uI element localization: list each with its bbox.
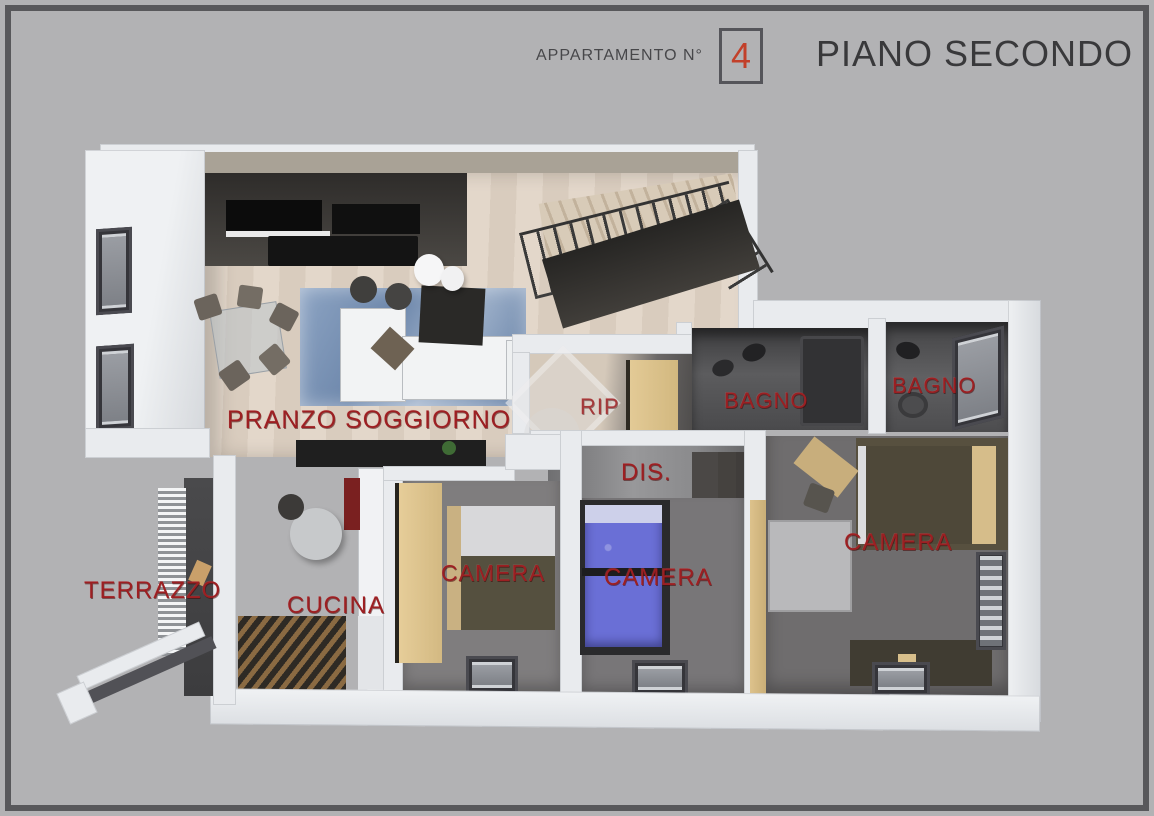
floorplan-render: PRANZO SOGGIORNO RIP BAGNO BAGNO DIS. CA… xyxy=(0,0,1154,816)
bottom-outer-wall xyxy=(210,688,1040,731)
rip-top-wall xyxy=(512,334,692,354)
camera1-window xyxy=(466,656,518,694)
living-window-2 xyxy=(96,344,134,432)
kitchen-bench-slats xyxy=(238,616,346,698)
window-glass xyxy=(102,233,126,309)
camera1-right-wall xyxy=(560,430,582,696)
room-label-cucina: CUCINA xyxy=(287,592,385,620)
tv-panel-2 xyxy=(332,204,420,234)
kitchen-counter xyxy=(296,440,486,467)
room-label-camera-2: CAMERA xyxy=(604,564,713,592)
room-label-camera-3: CAMERA xyxy=(844,529,953,557)
room-label-terrazzo: TERRAZZO xyxy=(84,577,221,605)
red-cabinet xyxy=(344,478,360,530)
camera3-window-right xyxy=(976,552,1006,650)
camera3-closet-white xyxy=(768,520,852,612)
room-label-camera-1: CAMERA xyxy=(441,560,545,587)
counter-plant xyxy=(442,441,456,455)
room-label-pranzo-soggiorno: PRANZO SOGGIORNO xyxy=(227,406,511,435)
camera2-wardrobe xyxy=(750,500,767,696)
living-window-1 xyxy=(96,227,132,316)
outer-right-wall xyxy=(1008,300,1041,722)
living-bottom-left-wall xyxy=(85,428,210,458)
room-label-dis: DIS. xyxy=(621,459,672,487)
window-glass xyxy=(102,350,128,425)
pouf-2 xyxy=(385,283,412,310)
room-label-rip: RIP xyxy=(580,394,620,420)
shower-column xyxy=(800,336,864,426)
bagni-divider-wall xyxy=(868,318,886,434)
window-glass xyxy=(472,662,512,688)
kitchen-column xyxy=(358,468,386,696)
tulip-chair-1 xyxy=(414,254,444,286)
presentation-board: APPARTAMENTO N° 4 PIANO SECONDO xyxy=(0,0,1154,816)
tv-screen xyxy=(226,200,322,232)
window-glass xyxy=(878,668,924,690)
media-console xyxy=(268,236,418,266)
tulip-chair-2 xyxy=(441,266,464,291)
terrace-railing-post xyxy=(56,681,97,724)
camera1-door-jog xyxy=(505,434,563,470)
camera1-wardrobe xyxy=(395,483,442,663)
window-glass xyxy=(638,666,682,690)
camera2-window xyxy=(632,660,688,696)
room-label-bagno-2: BAGNO xyxy=(892,373,976,399)
dining-chair xyxy=(237,284,264,309)
pouf-1 xyxy=(350,276,377,303)
camera3-window-bottom xyxy=(872,662,930,696)
kitchen-chair xyxy=(278,494,304,520)
camera1-top-wall xyxy=(383,466,515,481)
window-blinds xyxy=(980,556,1002,646)
room-label-bagno-1: BAGNO xyxy=(724,388,808,414)
coffee-table xyxy=(419,285,486,345)
